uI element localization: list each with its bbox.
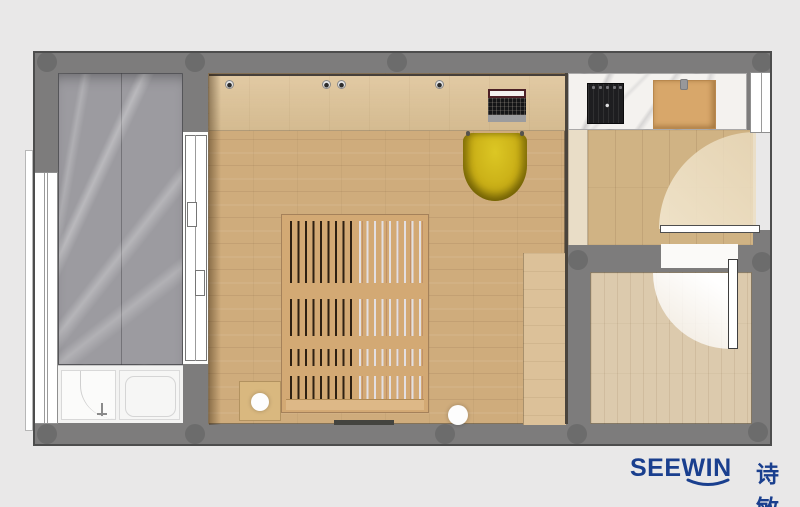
laptop-palmrest bbox=[488, 115, 526, 122]
interior-door-swing-arc bbox=[653, 273, 731, 349]
cabinet-knob-icon bbox=[337, 80, 346, 89]
sliding-glass-door bbox=[183, 132, 209, 364]
bathtub-rim bbox=[125, 376, 176, 417]
cutting-board bbox=[653, 80, 716, 129]
floor-shadow bbox=[209, 74, 221, 425]
wall-bolt-icon bbox=[568, 250, 588, 270]
brand-logo-chinese: 诗敏 bbox=[756, 455, 795, 507]
bed-slats-right bbox=[359, 221, 424, 405]
table-lamp bbox=[251, 393, 269, 411]
cabinet-knob-icon bbox=[225, 80, 234, 89]
bed-end-bench bbox=[334, 420, 394, 425]
interior-door-leaf bbox=[728, 259, 738, 349]
cooktop-knob-icon bbox=[599, 86, 602, 89]
floor-plan bbox=[33, 51, 772, 446]
sliding-door-track bbox=[195, 135, 196, 361]
wall-bolt-icon bbox=[185, 424, 205, 444]
bed-rail bbox=[283, 283, 427, 299]
cooktop-knob-icon bbox=[606, 86, 609, 89]
bathtub-unit bbox=[58, 365, 183, 423]
window-sill bbox=[25, 150, 33, 431]
faucet-icon bbox=[97, 413, 107, 415]
induction-cooktop bbox=[587, 83, 624, 124]
wall-bolt-icon bbox=[752, 52, 772, 72]
wall-bolt-icon bbox=[567, 424, 587, 444]
bathtub bbox=[119, 370, 180, 420]
right-window bbox=[750, 72, 772, 133]
entry-door-leaf bbox=[660, 225, 760, 233]
interior-doorway-opening bbox=[661, 244, 738, 268]
wall-bolt-icon bbox=[185, 52, 205, 72]
shower-seat-curve bbox=[80, 371, 116, 419]
sliding-door-panel bbox=[187, 202, 197, 227]
chair-arm-tip bbox=[466, 131, 470, 136]
bathroom-marble-room bbox=[58, 73, 183, 365]
wall-bolt-icon bbox=[748, 422, 768, 442]
utility-room bbox=[590, 272, 752, 424]
logo-smile-icon bbox=[686, 478, 730, 488]
cabinet-knob-icon bbox=[322, 80, 331, 89]
wardrobe bbox=[523, 253, 566, 425]
laptop-keyboard bbox=[488, 98, 526, 115]
bed-slats-left bbox=[290, 221, 354, 405]
cooktop-knob-icon bbox=[619, 86, 622, 89]
wall-bolt-icon bbox=[37, 52, 57, 72]
yellow-desk-chair bbox=[463, 133, 527, 201]
laptop-screen bbox=[488, 89, 526, 98]
wall-bolt-icon bbox=[37, 424, 57, 444]
kitchen-marble-counter bbox=[568, 73, 747, 130]
slatted-platform-bed bbox=[281, 214, 429, 413]
hall-threshold-strip bbox=[568, 130, 588, 245]
brand-logo: SEEWIN 诗敏 bbox=[630, 451, 795, 487]
wall-bolt-icon bbox=[752, 252, 772, 272]
hallway bbox=[588, 130, 753, 245]
floor-lamp bbox=[448, 405, 468, 425]
walk-in-shower-tray bbox=[61, 370, 116, 420]
bed-rail bbox=[283, 336, 427, 349]
floor-plan-canvas: SEEWIN 诗敏 bbox=[0, 0, 800, 507]
sliding-door-panel bbox=[195, 270, 205, 296]
bedroom bbox=[208, 73, 565, 424]
cooktop-knob-icon bbox=[592, 86, 595, 89]
bed-footboard bbox=[286, 399, 424, 410]
wall-bolt-icon bbox=[588, 52, 608, 72]
board-handle-icon bbox=[680, 79, 688, 90]
left-window bbox=[33, 172, 58, 424]
wall-bolt-icon bbox=[387, 52, 407, 72]
cooktop-knob-icon bbox=[613, 86, 616, 89]
sliding-door-frame bbox=[185, 135, 207, 361]
cabinet-knob-icon bbox=[435, 80, 444, 89]
bed-rail bbox=[283, 366, 427, 376]
entry-door-swing-arc bbox=[659, 132, 756, 229]
chair-arm-tip bbox=[520, 131, 524, 136]
wall-bolt-icon bbox=[435, 424, 455, 444]
